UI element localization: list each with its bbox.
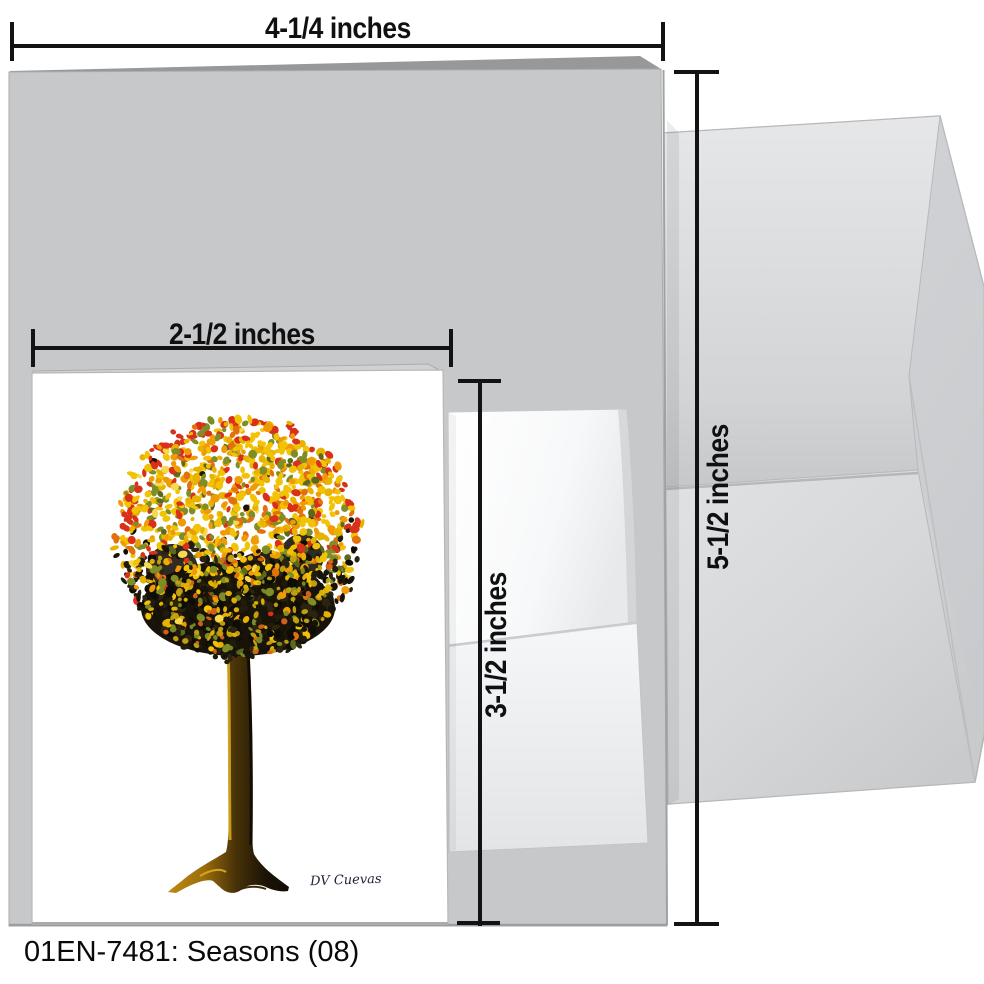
dim-insert-height-label: 3-1/2 inches xyxy=(480,562,514,728)
card-shadow-on-small-envelope xyxy=(448,412,456,852)
product-caption: 01EN-7481: Seasons (08) xyxy=(24,936,359,969)
artist-signature: DV Cuevas xyxy=(309,872,382,890)
dim-card-height-tick-top xyxy=(674,70,719,74)
product-size-diagram: DV Cuevas 4-1/4 inches 2-1/2 inches 5-1/… xyxy=(0,0,984,984)
small-envelope-flap xyxy=(448,409,637,645)
card-shadow-on-envelope xyxy=(667,120,679,806)
dim-card-height-label: 5-1/2 inches xyxy=(702,414,736,580)
dim-insert-height-tick-top xyxy=(458,379,501,383)
scene-graphics: DV Cuevas xyxy=(0,0,984,984)
dim-card-height-line xyxy=(695,71,699,926)
trunk-highlight xyxy=(228,648,230,840)
dim-card-width-label: 4-1/4 inches xyxy=(10,12,665,46)
dim-insert-height-tick-bottom xyxy=(457,921,500,925)
dim-card-height-tick-bottom xyxy=(674,922,719,926)
dim-insert-width-label: 2-1/2 inches xyxy=(31,318,452,352)
